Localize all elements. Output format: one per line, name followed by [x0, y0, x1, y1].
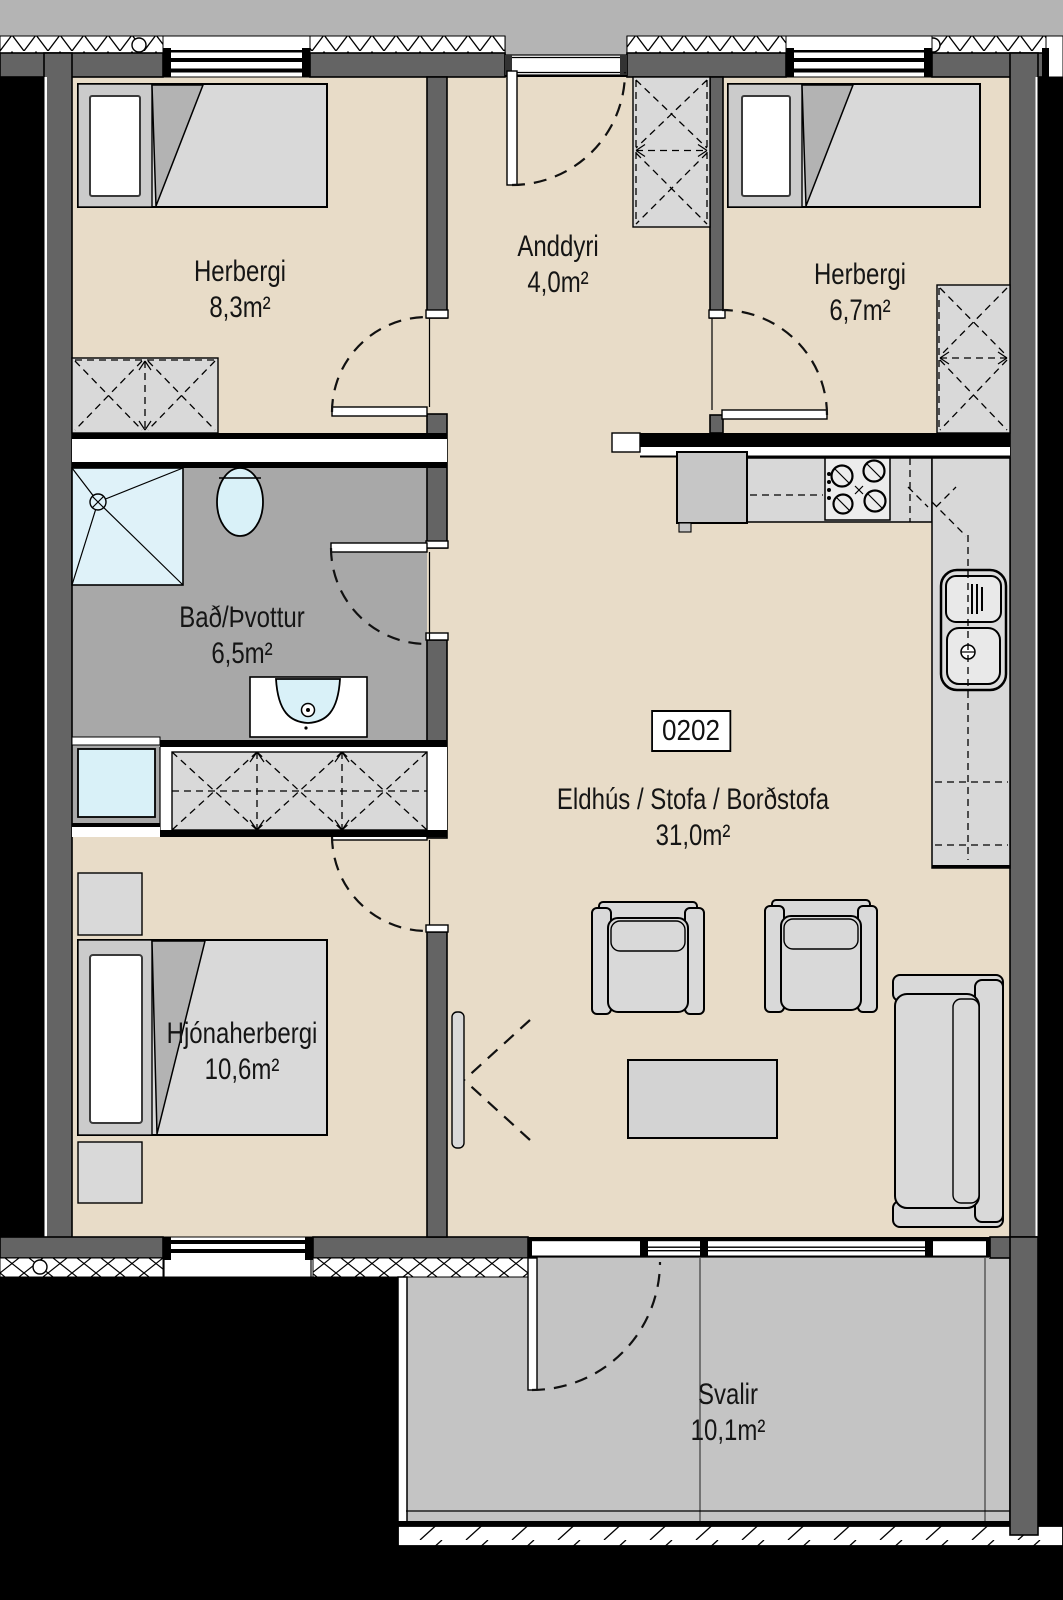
toilet — [217, 468, 263, 536]
room-name: Herbergi — [194, 254, 286, 290]
vent-marker — [33, 1260, 47, 1274]
room-area: 4,0m² — [517, 265, 598, 301]
room-name: Anddyri — [517, 229, 598, 265]
wardrobe-bedroom-top-left — [72, 358, 218, 433]
room-label-balcony: Svalir 10,1m² — [691, 1377, 766, 1449]
unit-number-box: 0202 — [651, 710, 731, 752]
room-name: Svalir — [691, 1377, 766, 1413]
room-name: Hjónaherbergi — [167, 1016, 318, 1052]
nightstand — [78, 873, 142, 935]
coffee-table — [628, 1060, 777, 1138]
window-bedroom-top-left — [163, 36, 310, 77]
wardrobe-bedroom-top-right — [937, 285, 1010, 433]
hall-closet — [160, 740, 447, 837]
armchair — [592, 902, 704, 1014]
balcony-side-rail — [398, 1277, 407, 1523]
room-label-entry-hall: Anddyri 4,0m² — [517, 229, 598, 301]
kitchen-sink — [941, 570, 1006, 690]
room-area: 6,5m² — [179, 636, 304, 672]
room-label-master-bedroom: Hjónaherbergi 10,6m² — [167, 1016, 318, 1088]
bed-top-left — [78, 84, 327, 207]
room-area: 8,3m² — [194, 290, 286, 326]
room-area: 31,0m² — [557, 818, 829, 854]
room-name: Eldhús / Stofa / Borðstofa — [557, 782, 829, 818]
window-master-bedroom — [163, 1237, 313, 1277]
stove — [825, 458, 890, 520]
room-label-bedroom-top-left: Herbergi 8,3m² — [194, 254, 286, 326]
window-bedroom-top-right — [786, 36, 932, 77]
room-area: 10,1m² — [691, 1413, 766, 1449]
bed-top-right — [728, 84, 980, 207]
sofa — [893, 975, 1003, 1227]
room-name: Herbergi — [814, 257, 906, 293]
wardrobe-entry — [633, 77, 710, 227]
unit-number: 0202 — [662, 715, 720, 747]
entry-door-frame — [505, 55, 627, 75]
nightstand — [78, 1142, 142, 1203]
bathroom-sink — [250, 677, 367, 737]
room-label-bedroom-top-right: Herbergi 6,7m² — [814, 257, 906, 329]
vent-marker — [132, 38, 146, 52]
floor-plan: Herbergi 8,3m² Anddyri 4,0m² Herbergi 6,… — [0, 0, 1063, 1600]
room-label-kitchen-living: Eldhús / Stofa / Borðstofa 31,0m² — [557, 782, 829, 854]
armchair — [765, 900, 877, 1012]
room-label-bathroom: Bað/Þvottur 6,5m² — [179, 600, 304, 672]
refrigerator — [677, 452, 747, 532]
balcony-glass-wall — [528, 1239, 990, 1258]
balcony-railing — [398, 1526, 1063, 1546]
room-area: 10,6m² — [167, 1052, 318, 1088]
room-area: 6,7m² — [814, 293, 906, 329]
room-name: Bað/Þvottur — [179, 600, 304, 636]
left-exterior-wall — [44, 53, 72, 1258]
shower — [72, 468, 183, 585]
